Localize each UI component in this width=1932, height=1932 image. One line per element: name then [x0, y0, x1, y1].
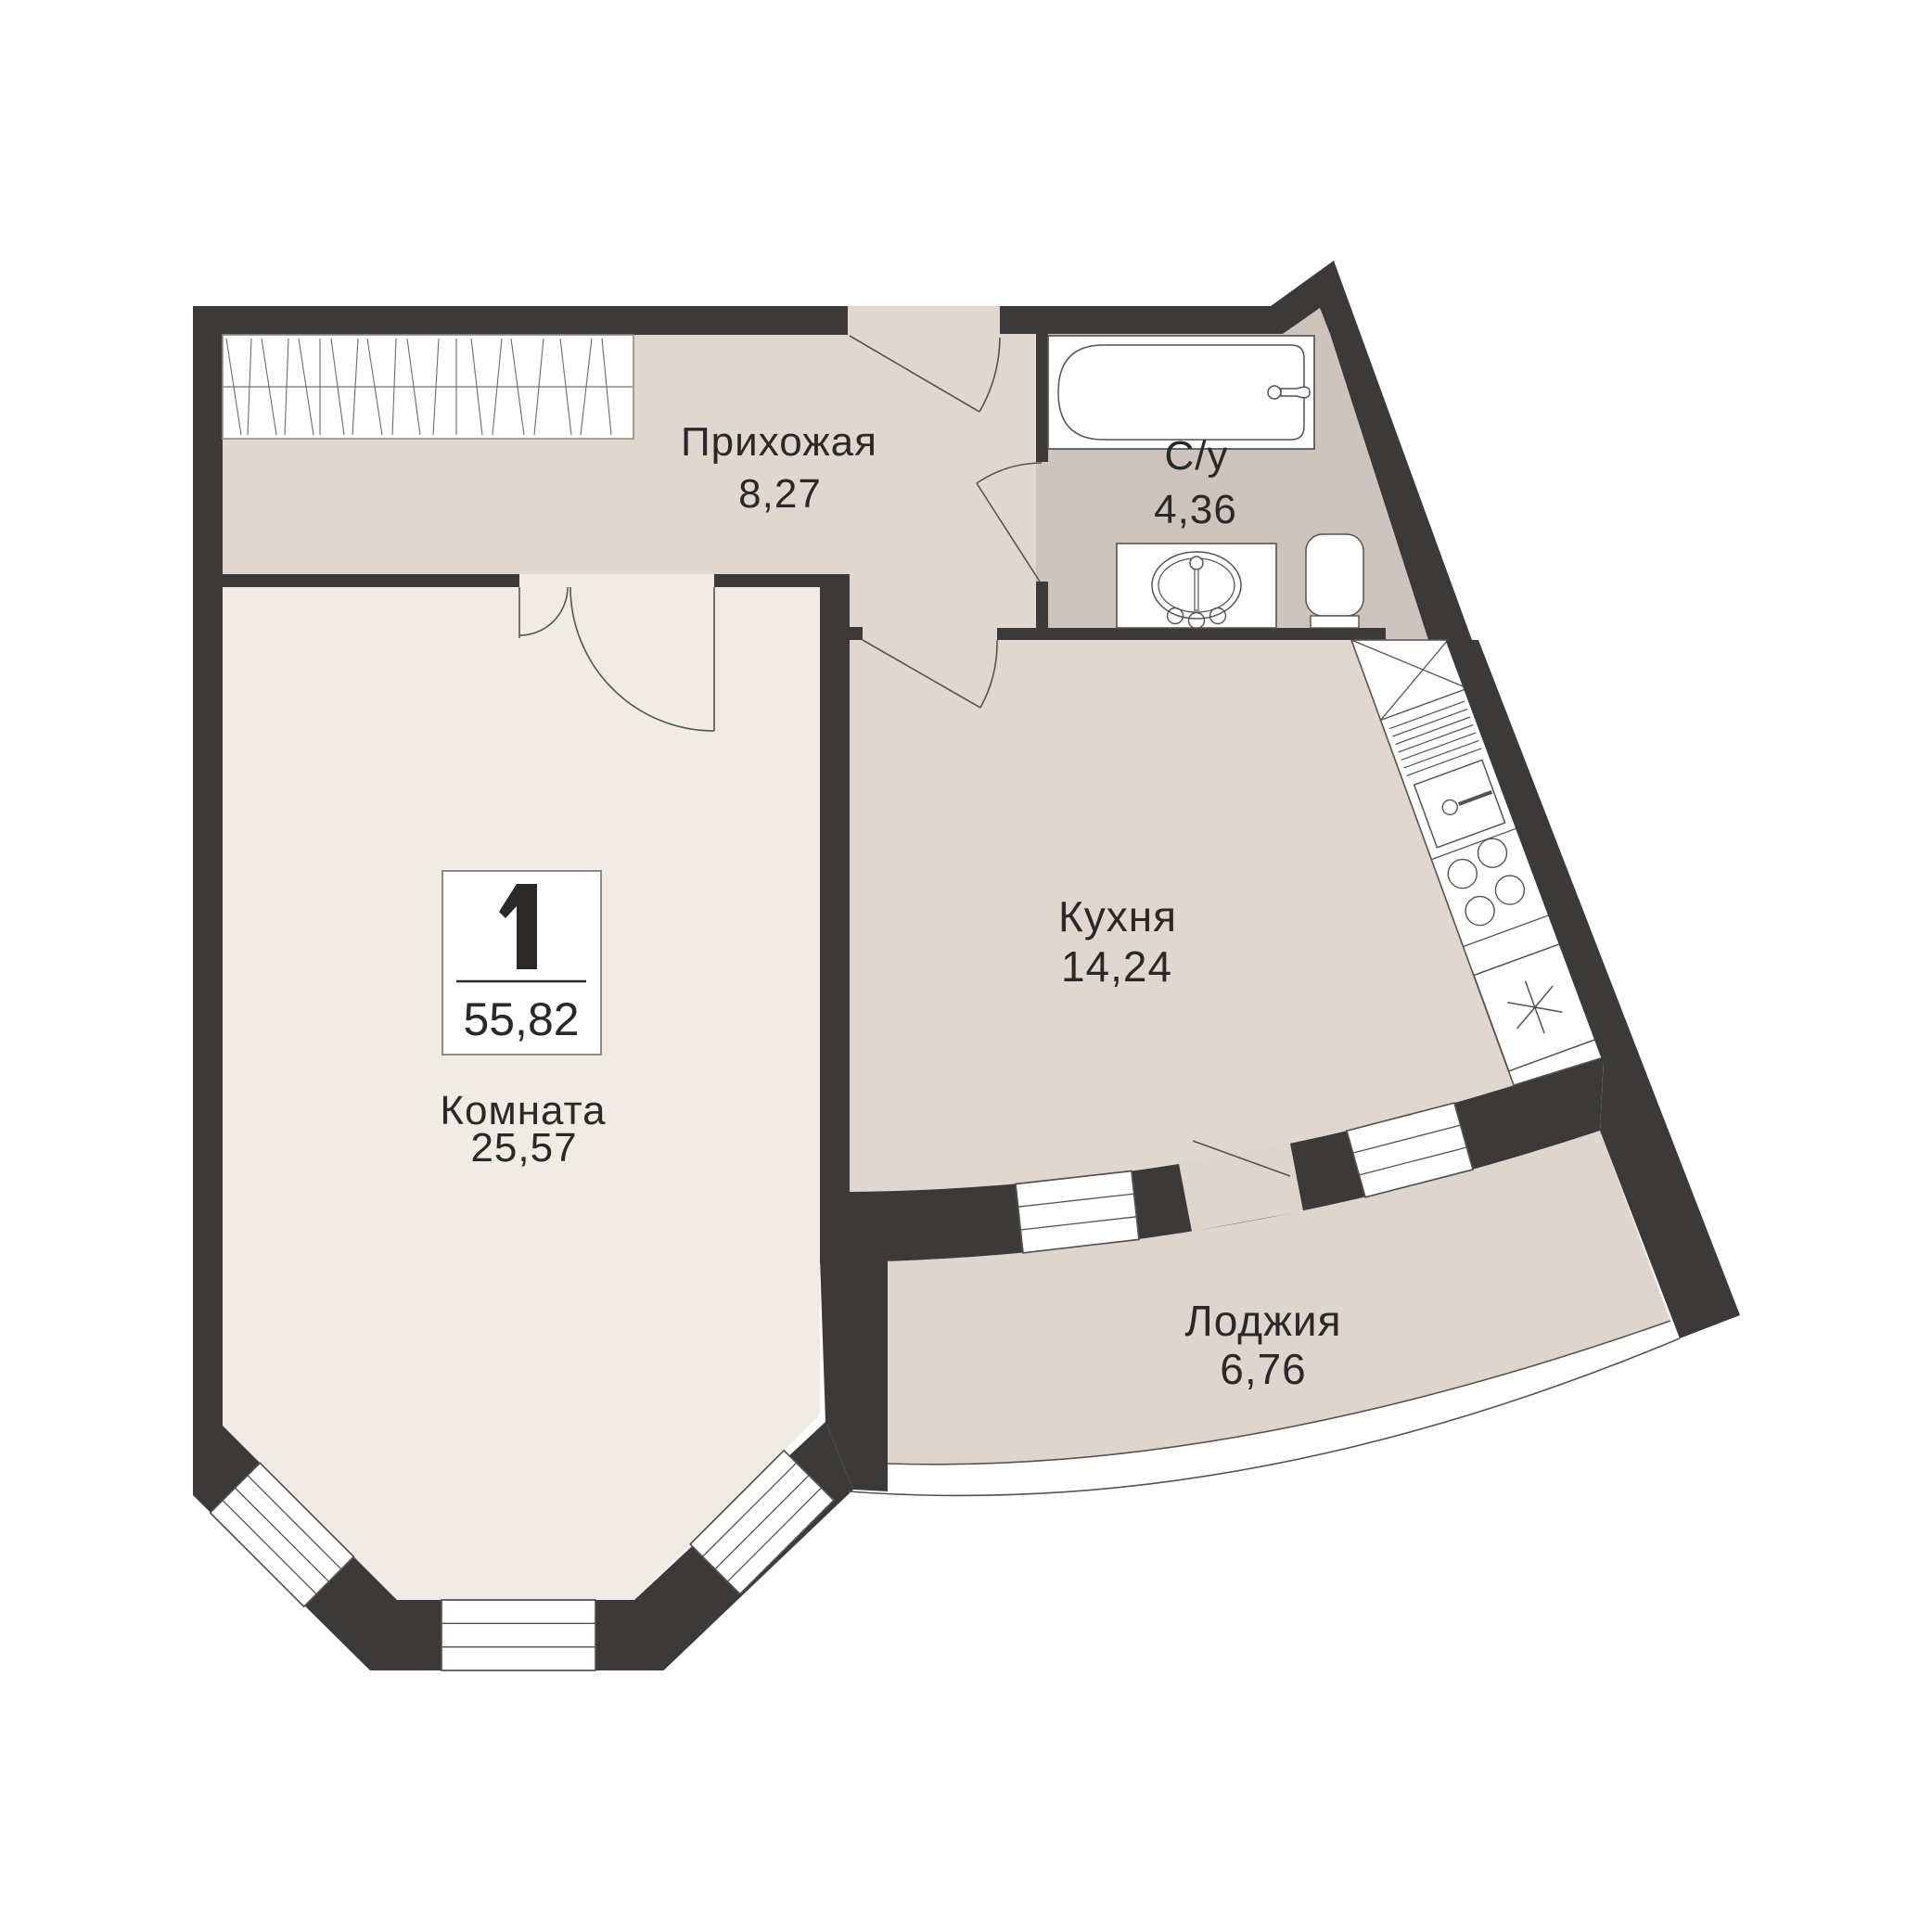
svg-text:8,27: 8,27: [738, 471, 822, 517]
svg-text:Лоджия: Лоджия: [1185, 1297, 1342, 1345]
svg-text:6,76: 6,76: [1220, 1345, 1307, 1393]
svg-text:25,57: 25,57: [470, 1125, 577, 1171]
svg-text:Кухня: Кухня: [1058, 892, 1177, 940]
svg-text:14,24: 14,24: [1061, 942, 1172, 991]
svg-text:Прихожая: Прихожая: [681, 419, 877, 465]
svg-text:С/у: С/у: [1165, 433, 1229, 479]
svg-text:4,36: 4,36: [1154, 487, 1237, 532]
svg-text:55,82: 55,82: [463, 993, 579, 1045]
